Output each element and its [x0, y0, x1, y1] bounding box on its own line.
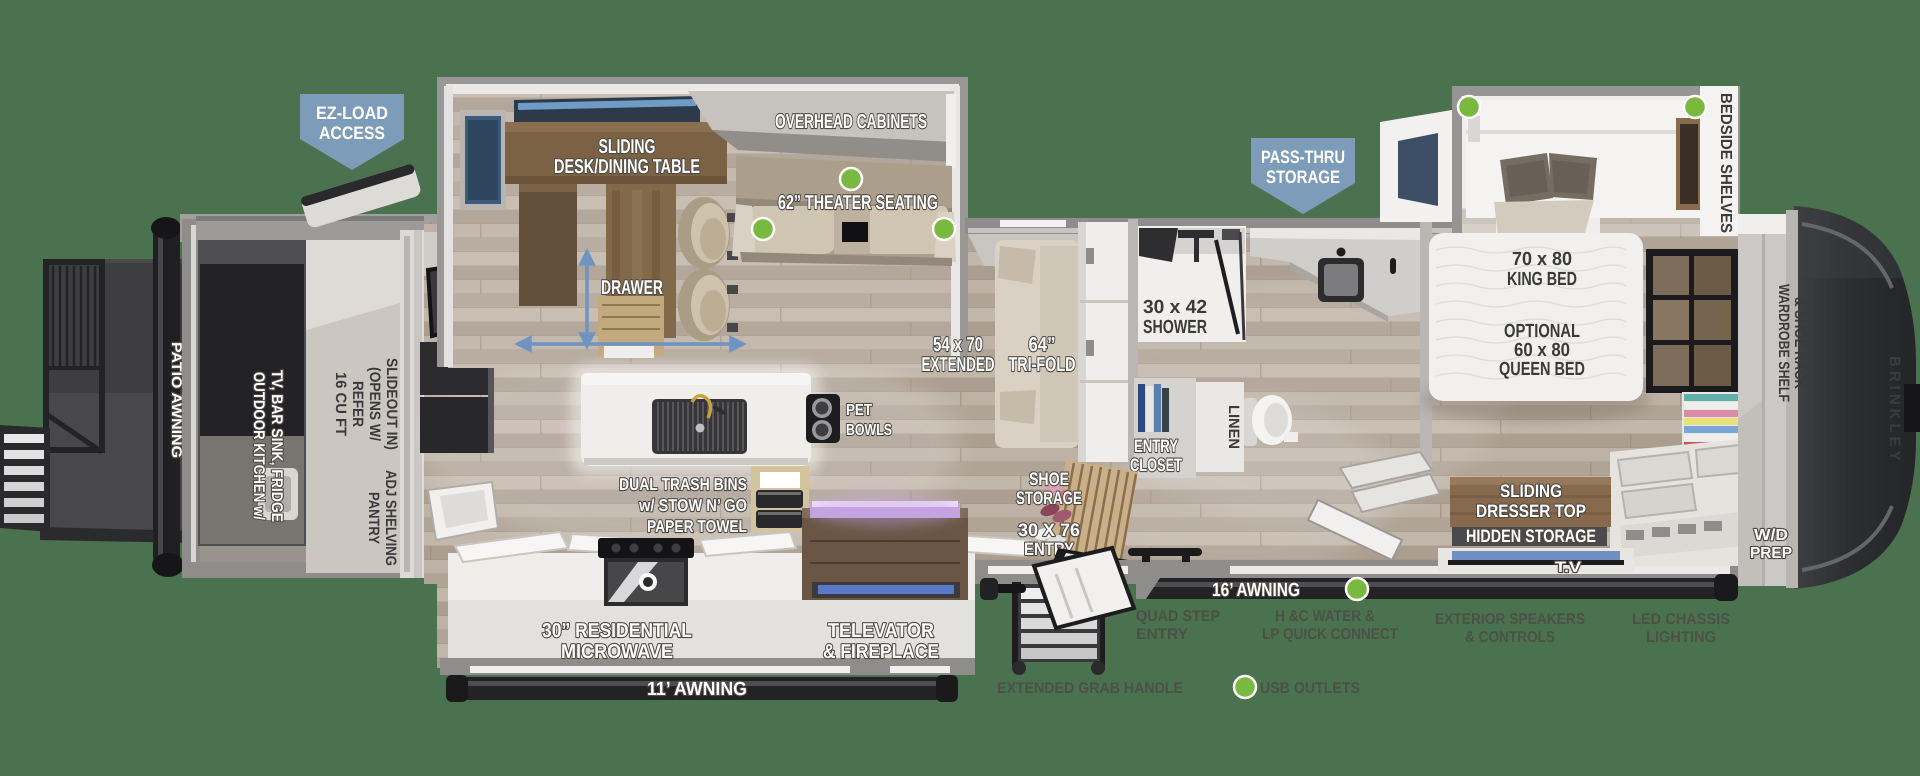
svg-text:DRESSER TOP: DRESSER TOP	[1476, 501, 1586, 521]
svg-text:PET: PET	[846, 402, 872, 419]
svg-text:11’ AWNING: 11’ AWNING	[647, 679, 747, 700]
svg-text:PREP: PREP	[1750, 545, 1792, 562]
svg-text:30” RESIDENTIAL: 30” RESIDENTIAL	[542, 620, 692, 642]
svg-text:ADJ SHELVING: ADJ SHELVING	[382, 470, 399, 566]
svg-text:EZ-LOAD: EZ-LOAD	[316, 103, 388, 123]
svg-text:MICROWAVE: MICROWAVE	[561, 641, 673, 663]
svg-text:54 x 70: 54 x 70	[933, 334, 983, 356]
svg-text:60 x 80: 60 x 80	[1514, 340, 1570, 361]
svg-text:TRI-FOLD: TRI-FOLD	[1009, 354, 1076, 376]
svg-text:EXTERIOR SPEAKERS: EXTERIOR SPEAKERS	[1435, 611, 1585, 628]
svg-text:SHOE: SHOE	[1029, 469, 1069, 489]
svg-text:REFER: REFER	[349, 381, 366, 427]
svg-text:KING BED: KING BED	[1507, 269, 1577, 290]
svg-text:USB OUTLETS: USB OUTLETS	[1260, 680, 1360, 697]
svg-text:30 X 76: 30 X 76	[1018, 520, 1080, 540]
svg-text:LED CHASSIS: LED CHASSIS	[1632, 611, 1730, 628]
svg-text:BEDSIDE SHELVES: BEDSIDE SHELVES	[1717, 93, 1734, 233]
svg-text:70 x 80: 70 x 80	[1512, 249, 1572, 270]
svg-text:30 x 42: 30 x 42	[1143, 297, 1207, 318]
svg-text:ENTRY: ENTRY	[1134, 436, 1178, 456]
svg-text:DUAL TRASH BINS: DUAL TRASH BINS	[619, 475, 747, 494]
svg-text:16 CU FT: 16 CU FT	[332, 372, 349, 436]
svg-text:OUTDOOR KITCHEN w/: OUTDOOR KITCHEN w/	[250, 372, 267, 521]
svg-text:PAPER TOWEL: PAPER TOWEL	[647, 517, 747, 536]
svg-text:64”: 64”	[1029, 334, 1056, 356]
svg-text:WARDROBE SHELF: WARDROBE SHELF	[1775, 284, 1792, 402]
svg-text:ENTRY: ENTRY	[1136, 626, 1189, 643]
svg-text:PANTRY: PANTRY	[365, 492, 382, 544]
svg-text:OVERHEAD CABINETS: OVERHEAD CABINETS	[775, 111, 927, 133]
svg-text:QUEEN BED: QUEEN BED	[1499, 359, 1585, 380]
svg-text:SLIDING: SLIDING	[1500, 481, 1562, 501]
svg-text:TV, BAR SINK, FRIDGE: TV, BAR SINK, FRIDGE	[268, 370, 285, 522]
svg-text:& CONTROLS: & CONTROLS	[1465, 629, 1555, 646]
svg-text:w/ STOW N’ GO: w/ STOW N’ GO	[638, 496, 747, 515]
svg-text:STORAGE: STORAGE	[1016, 488, 1082, 508]
svg-text:(OPENS W/: (OPENS W/	[366, 367, 383, 442]
svg-text:DESK/DINING TABLE: DESK/DINING TABLE	[554, 156, 700, 178]
svg-text:T.V: T.V	[1555, 559, 1581, 576]
svg-text:TELEVATOR: TELEVATOR	[828, 620, 934, 642]
svg-text:62” THEATER SEATING: 62” THEATER SEATING	[778, 192, 938, 214]
svg-text:OPTIONAL: OPTIONAL	[1504, 321, 1580, 342]
svg-text:EXTENDED GRAB HANDLE: EXTENDED GRAB HANDLE	[997, 680, 1183, 697]
svg-text:SHOWER: SHOWER	[1143, 317, 1207, 338]
svg-text:& SHOE RACK: & SHOE RACK	[1791, 297, 1808, 389]
svg-text:HIDDEN STORAGE: HIDDEN STORAGE	[1466, 526, 1596, 546]
svg-text:SLIDEOUT IN): SLIDEOUT IN)	[383, 358, 400, 450]
svg-text:QUAD STEP: QUAD STEP	[1136, 608, 1220, 625]
svg-text:DRAWER: DRAWER	[601, 277, 663, 299]
svg-text:H &C WATER &: H &C WATER &	[1275, 608, 1375, 625]
svg-text:& FIREPLACE: & FIREPLACE	[823, 641, 939, 663]
svg-text:SLIDING: SLIDING	[599, 136, 656, 158]
svg-text:BRINKLEY: BRINKLEY	[1886, 356, 1903, 465]
svg-text:LP QUICK CONNECT: LP QUICK CONNECT	[1262, 626, 1398, 643]
svg-text:ACCESS: ACCESS	[319, 123, 385, 143]
svg-text:16’ AWNING: 16’ AWNING	[1212, 580, 1300, 601]
svg-text:PASS-THRU: PASS-THRU	[1261, 147, 1345, 167]
svg-text:STORAGE: STORAGE	[1266, 167, 1340, 187]
svg-text:EXTENDED: EXTENDED	[922, 354, 995, 376]
svg-text:LIGHTING: LIGHTING	[1646, 629, 1716, 646]
svg-text:W/D: W/D	[1754, 527, 1788, 544]
svg-text:LINEN: LINEN	[1225, 405, 1242, 449]
svg-text:BOWLS: BOWLS	[846, 422, 892, 439]
